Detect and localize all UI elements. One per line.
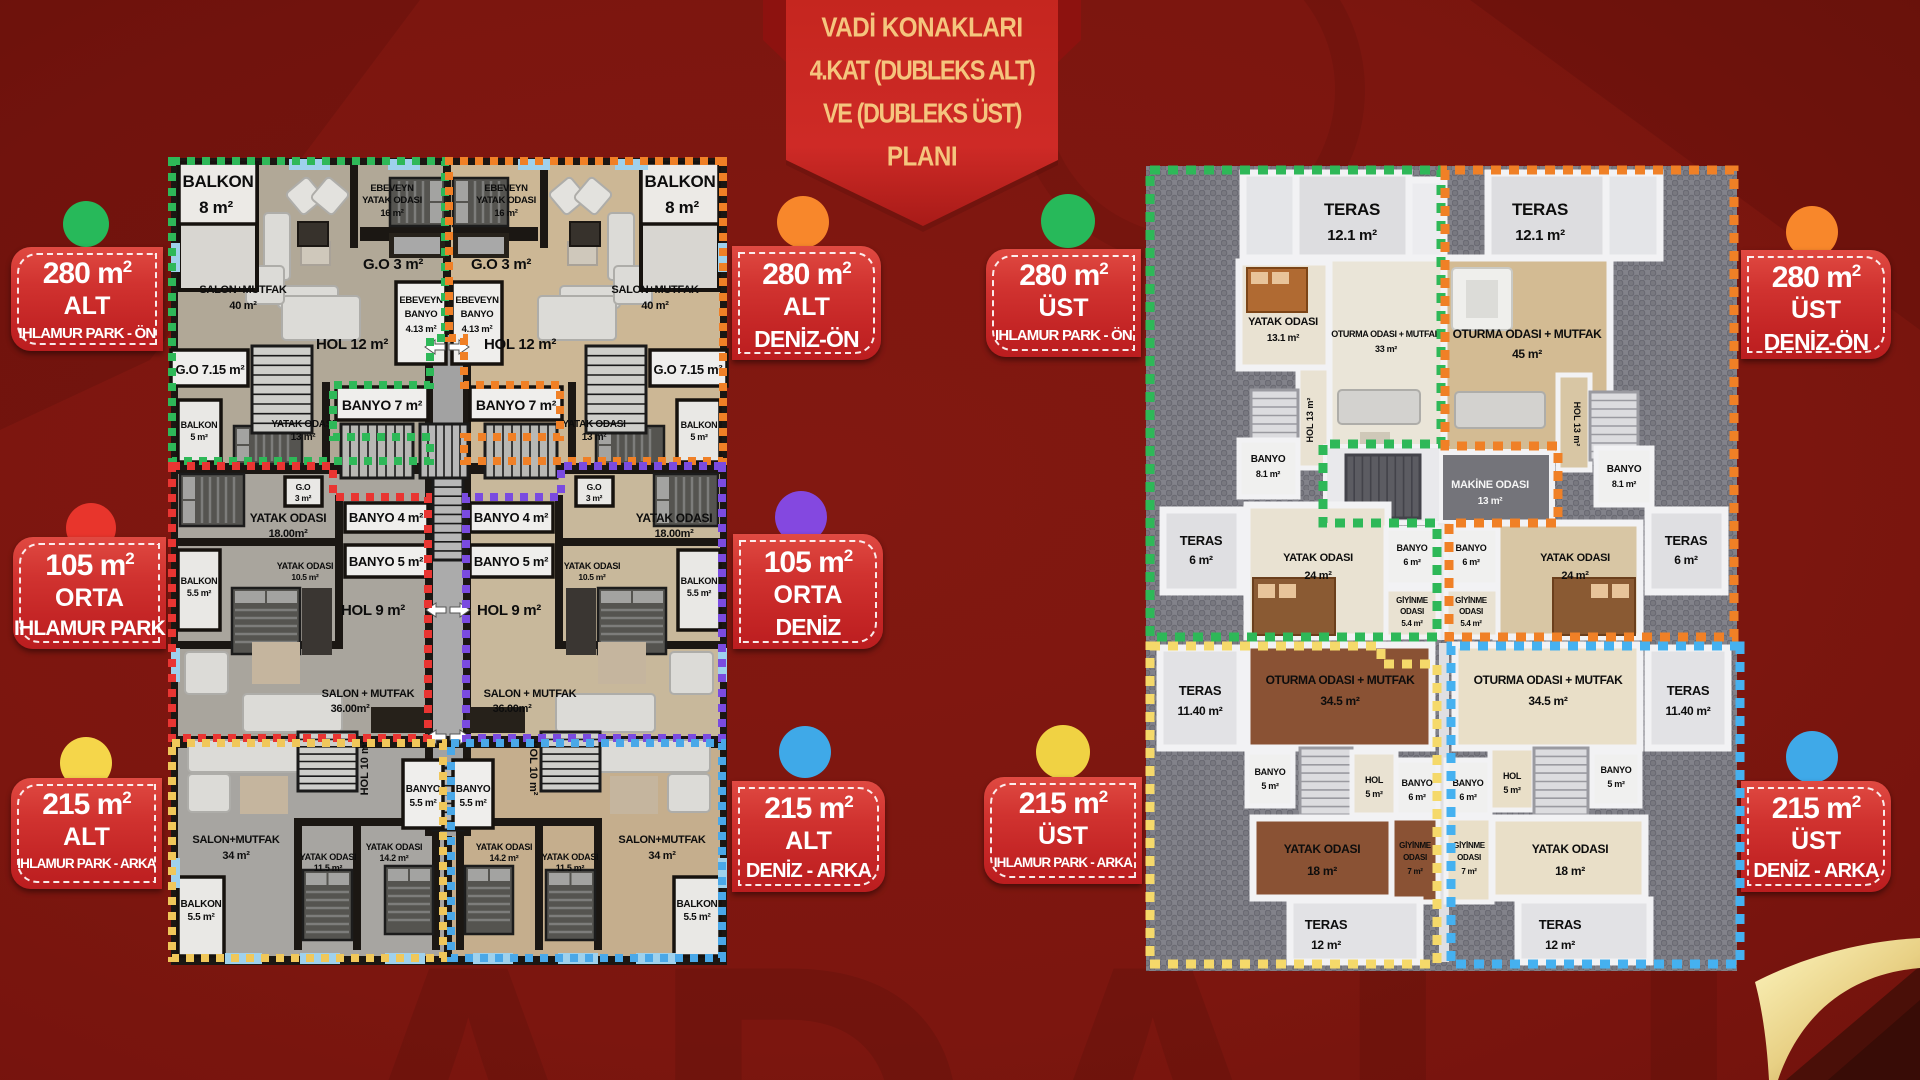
svg-text:HOL: HOL [1365,775,1384,785]
svg-text:TERAS: TERAS [1665,533,1708,548]
svg-text:TERAS: TERAS [1512,200,1568,219]
svg-text:GİYİNME: GİYİNME [1396,596,1429,605]
svg-text:GİYİNME: GİYİNME [1453,841,1486,850]
svg-text:8.1 m²: 8.1 m² [1256,469,1281,479]
svg-text:5.4 m²: 5.4 m² [1401,619,1423,628]
svg-text:YATAK ODASI: YATAK ODASI [1284,842,1361,856]
svg-text:18 m²: 18 m² [1555,864,1585,878]
svg-text:6 m²: 6 m² [1462,557,1480,567]
svg-text:TERAS: TERAS [1180,533,1223,548]
svg-text:YATAK ODASI: YATAK ODASI [1248,316,1318,328]
svg-text:BANYO: BANYO [1455,543,1486,553]
svg-text:OTURMA ODASI + MUTFAK: OTURMA ODASI + MUTFAK [1474,673,1624,687]
svg-text:OTURMA ODASI + MUTFAK: OTURMA ODASI + MUTFAK [1453,327,1603,341]
svg-text:13.1 m²: 13.1 m² [1267,333,1300,344]
svg-text:ODASI: ODASI [1403,853,1427,862]
svg-text:7 m²: 7 m² [1407,867,1423,876]
svg-text:ODASI: ODASI [1457,853,1481,862]
svg-text:6 m²: 6 m² [1674,553,1698,567]
svg-text:12 m²: 12 m² [1311,938,1341,952]
svg-text:33 m²: 33 m² [1375,344,1397,354]
svg-text:11.40 m²: 11.40 m² [1666,704,1711,718]
svg-text:ODASI: ODASI [1459,607,1483,616]
svg-text:6 m²: 6 m² [1403,557,1421,567]
svg-text:13 m²: 13 m² [1478,496,1504,507]
svg-text:HOL 13 m²: HOL 13 m² [1305,398,1315,443]
svg-text:TERAS: TERAS [1179,683,1222,698]
svg-text:5.4 m²: 5.4 m² [1460,619,1482,628]
svg-text:BANYO: BANYO [1254,767,1285,777]
svg-text:BANYO: BANYO [1452,778,1483,788]
svg-text:24 m²: 24 m² [1561,570,1589,582]
svg-text:7 m²: 7 m² [1461,867,1477,876]
svg-text:TERAS: TERAS [1305,917,1348,932]
svg-text:18 m²: 18 m² [1307,864,1337,878]
svg-text:BANYO: BANYO [1396,543,1427,553]
svg-text:12 m²: 12 m² [1545,938,1575,952]
svg-text:GİYİNME: GİYİNME [1399,841,1432,850]
svg-text:HOL: HOL [1503,771,1522,781]
svg-text:12.1 m²: 12.1 m² [1327,227,1377,244]
svg-text:24 m²: 24 m² [1304,570,1332,582]
svg-text:YATAK ODASI: YATAK ODASI [1540,552,1610,564]
svg-text:5 m²: 5 m² [1365,789,1383,799]
svg-text:ODASI: ODASI [1400,607,1424,616]
svg-text:11.40 m²: 11.40 m² [1178,704,1223,718]
svg-text:BANYO: BANYO [1600,765,1631,775]
svg-text:34.5 m²: 34.5 m² [1320,694,1360,708]
svg-text:YATAK ODASI: YATAK ODASI [1532,842,1609,856]
svg-text:6 m²: 6 m² [1459,792,1477,802]
svg-text:BANYO: BANYO [1401,778,1432,788]
svg-text:5 m²: 5 m² [1503,785,1521,795]
svg-text:YATAK ODASI: YATAK ODASI [1283,552,1353,564]
svg-text:BANYO: BANYO [1607,464,1642,475]
svg-text:6 m²: 6 m² [1408,792,1426,802]
svg-text:5 m²: 5 m² [1607,779,1625,789]
svg-text:TERAS: TERAS [1324,200,1380,219]
svg-text:8.1 m²: 8.1 m² [1612,479,1637,489]
svg-text:MAKİNE ODASI: MAKİNE ODASI [1451,478,1529,491]
svg-text:TERAS: TERAS [1667,683,1710,698]
svg-text:GİYİNME: GİYİNME [1455,596,1488,605]
svg-text:5 m²: 5 m² [1261,781,1279,791]
svg-text:HOL 13 m²: HOL 13 m² [1572,402,1582,447]
svg-text:OTURMA ODASI + MUTFAK: OTURMA ODASI + MUTFAK [1266,673,1416,687]
svg-text:OTURMA ODASI + MUTFAK: OTURMA ODASI + MUTFAK [1331,329,1441,339]
svg-text:34.5 m²: 34.5 m² [1528,694,1568,708]
svg-text:12.1 m²: 12.1 m² [1515,227,1565,244]
svg-text:6 m²: 6 m² [1189,553,1213,567]
svg-text:BANYO: BANYO [1251,454,1286,465]
svg-text:45 m²: 45 m² [1512,347,1542,361]
svg-text:TERAS: TERAS [1539,917,1582,932]
